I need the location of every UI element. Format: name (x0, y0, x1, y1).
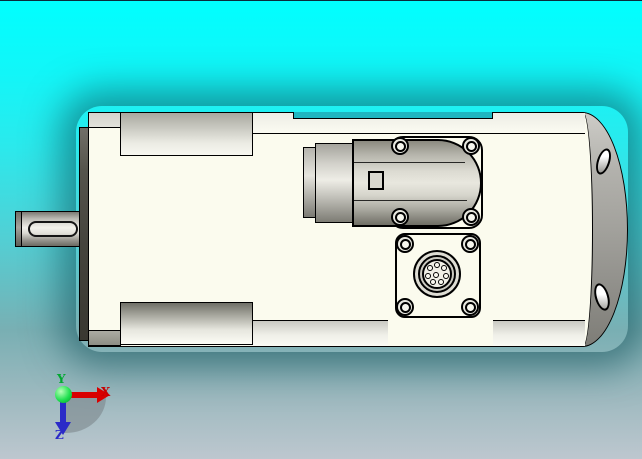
connector-pin (438, 279, 444, 285)
top-mounting-slot[interactable] (120, 112, 253, 156)
connector-pin (427, 265, 433, 271)
bottom-chamfer-band-left (253, 320, 388, 346)
plug-housing-seam-lower (353, 200, 467, 201)
x-axis-arrow[interactable] (68, 392, 98, 398)
x-axis-label: X (101, 386, 110, 398)
connector-pin (443, 273, 449, 279)
flange-screw (391, 137, 409, 155)
flange-screw (391, 208, 409, 226)
bottom-chamfer-band-right (493, 320, 585, 346)
bottom-left-corner-block (88, 330, 121, 346)
connector-pin (434, 262, 440, 268)
flange-screw (462, 208, 480, 226)
triad-origin-sphere[interactable] (55, 386, 72, 403)
flange-screw (396, 298, 414, 316)
flange-screw (461, 298, 479, 316)
plug-housing-seam-upper (353, 162, 465, 163)
flange-screw (462, 137, 480, 155)
plug-barrel[interactable] (315, 143, 353, 223)
shaft-end-ring (15, 211, 22, 247)
cad-viewport[interactable]: Y X Z (0, 0, 642, 459)
bottom-mounting-slot[interactable] (120, 302, 253, 345)
connector-pin (425, 273, 431, 279)
top-left-corner-block (88, 112, 121, 128)
plug-latch-window (368, 171, 384, 190)
flange-screw (461, 235, 479, 253)
connector-pin (433, 272, 439, 278)
flange-screw (396, 235, 414, 253)
connector-pin (430, 279, 436, 285)
y-axis-label: Y (57, 373, 66, 385)
z-axis-label: Z (55, 429, 64, 441)
shaft-keyway (28, 221, 78, 237)
connector-pin (441, 265, 447, 271)
window-top-edge (0, 0, 642, 1)
top-edge-notch (293, 112, 493, 119)
